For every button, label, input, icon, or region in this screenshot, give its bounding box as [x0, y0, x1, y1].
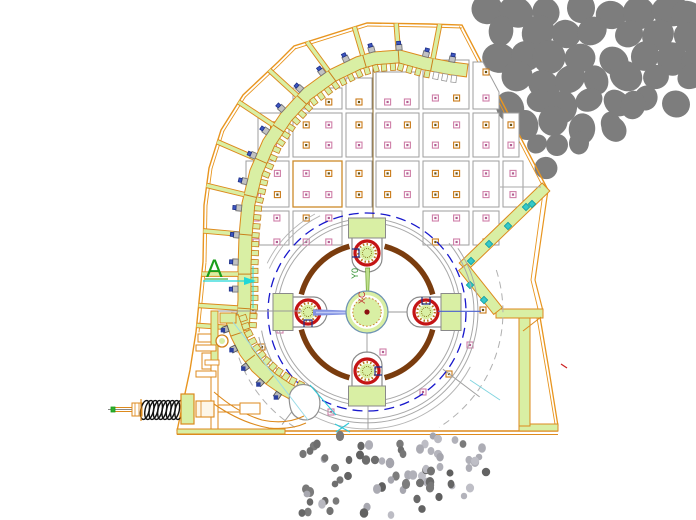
- svg-text:XC: XC: [357, 291, 367, 304]
- svg-text:Y0: Y0: [350, 268, 360, 279]
